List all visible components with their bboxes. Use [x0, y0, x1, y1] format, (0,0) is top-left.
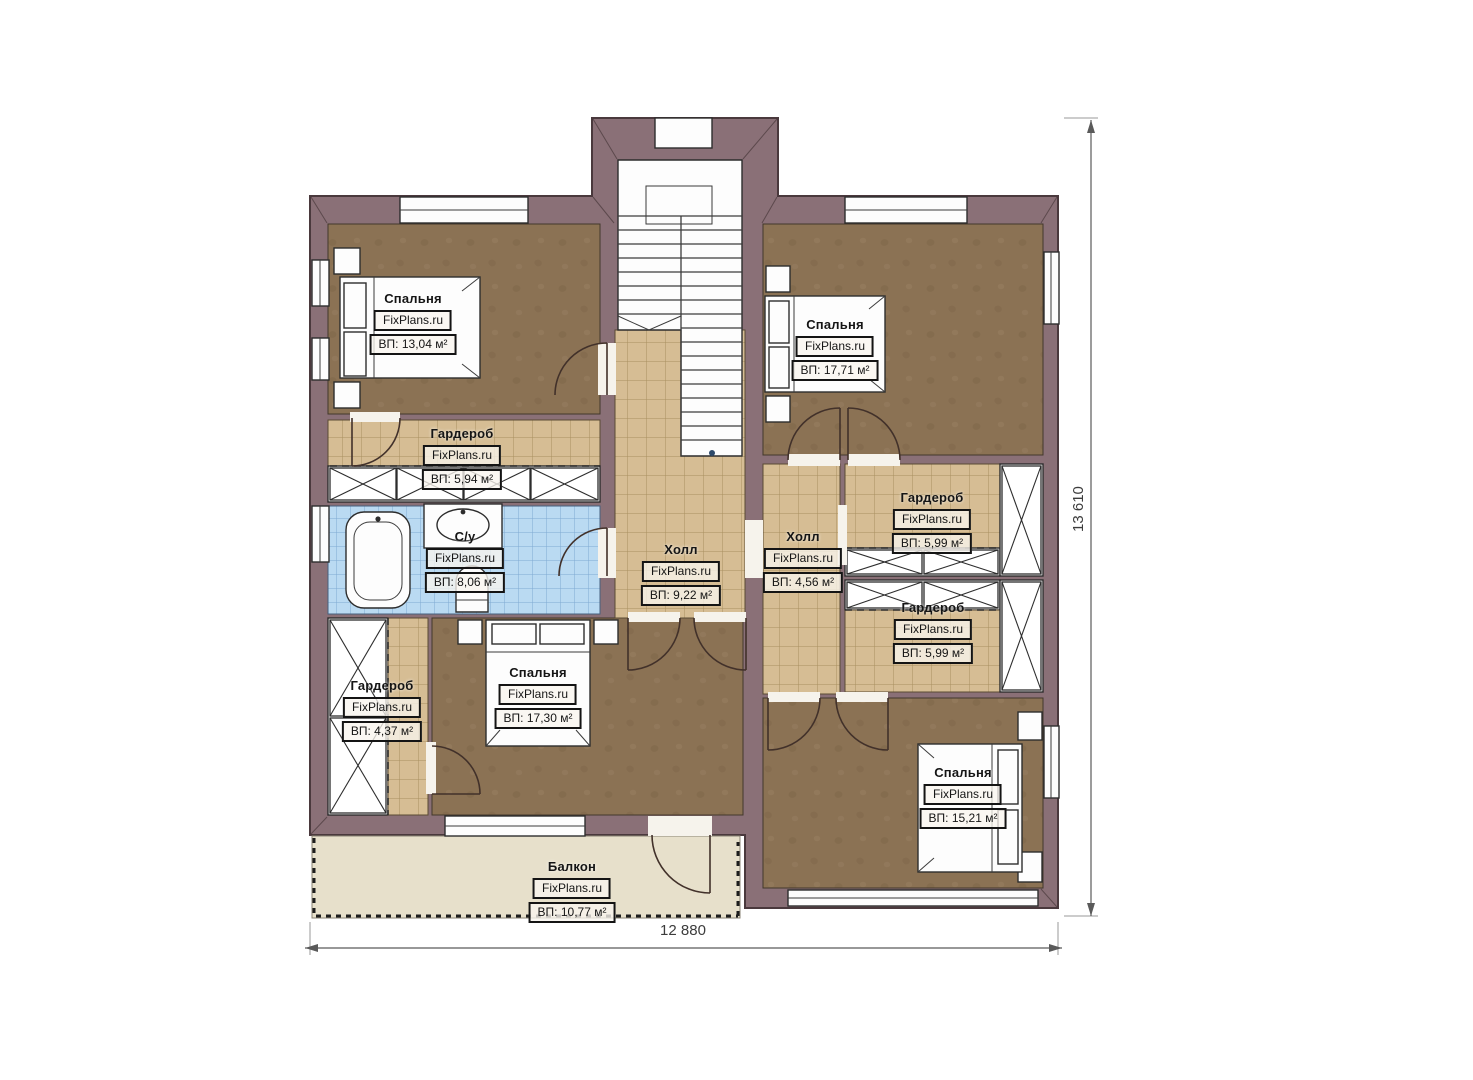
watermark: FixPlans.ru — [642, 561, 720, 582]
room-name: Балкон — [529, 860, 616, 875]
floor-plan-drawing — [0, 0, 1473, 1080]
room-name: Гардероб — [422, 427, 502, 442]
room-label-hall-center: Холл FixPlans.ru ВП: 9,22 м² — [641, 543, 721, 606]
watermark: FixPlans.ru — [894, 619, 972, 640]
room-area: ВП: 5,99 м² — [893, 643, 973, 664]
watermark: FixPlans.ru — [764, 548, 842, 569]
room-name: Спальня — [370, 292, 457, 307]
room-area: ВП: 8,06 м² — [425, 572, 505, 593]
room-label-wardrobe-right-bottom: Гардероб FixPlans.ru ВП: 5,99 м² — [893, 601, 973, 664]
room-label-bedroom-bottom-center: Спальня FixPlans.ru ВП: 17,30 м² — [495, 666, 582, 729]
watermark: FixPlans.ru — [924, 784, 1002, 805]
room-area: ВП: 5,99 м² — [892, 533, 972, 554]
room-area: ВП: 5,94 м² — [422, 469, 502, 490]
room-area: ВП: 9,22 м² — [641, 585, 721, 606]
watermark: FixPlans.ru — [343, 697, 421, 718]
balcony-deck — [312, 836, 740, 918]
room-label-bedroom-top-right: Спальня FixPlans.ru ВП: 17,71 м² — [792, 318, 879, 381]
room-label-hall-right: Холл FixPlans.ru ВП: 4,56 м² — [763, 530, 843, 593]
room-name: С/у — [425, 530, 505, 545]
room-area: ВП: 17,71 м² — [792, 360, 879, 381]
room-area: ВП: 4,56 м² — [763, 572, 843, 593]
watermark: FixPlans.ru — [796, 336, 874, 357]
bathtub-symbol — [346, 512, 410, 608]
watermark: FixPlans.ru — [893, 509, 971, 530]
room-area: ВП: 10,77 м² — [529, 902, 616, 923]
room-label-wardrobe-left-bottom: Гардероб FixPlans.ru ВП: 4,37 м² — [342, 679, 422, 742]
room-name: Гардероб — [892, 491, 972, 506]
room-area: ВП: 17,30 м² — [495, 708, 582, 729]
room-label-balcony: Балкон FixPlans.ru ВП: 10,77 м² — [529, 860, 616, 923]
room-name: Холл — [641, 543, 721, 558]
watermark: FixPlans.ru — [533, 878, 611, 899]
room-label-bedroom-top-left: Спальня FixPlans.ru ВП: 13,04 м² — [370, 292, 457, 355]
dimension-width-label: 12 880 — [660, 922, 706, 939]
watermark: FixPlans.ru — [426, 548, 504, 569]
room-area: ВП: 4,37 м² — [342, 721, 422, 742]
room-label-wardrobe-right-top: Гардероб FixPlans.ru ВП: 5,99 м² — [892, 491, 972, 554]
watermark: FixPlans.ru — [423, 445, 501, 466]
dimension-height-label: 13 610 — [1070, 486, 1087, 532]
room-label-bedroom-bottom-right: Спальня FixPlans.ru ВП: 15,21 м² — [920, 766, 1007, 829]
floor-plan-page: Спальня FixPlans.ru ВП: 13,04 м² Гардеро… — [0, 0, 1473, 1080]
room-label-wardrobe-left: Гардероб FixPlans.ru ВП: 5,94 м² — [422, 427, 502, 490]
room-area: ВП: 15,21 м² — [920, 808, 1007, 829]
room-label-bathroom: С/у FixPlans.ru ВП: 8,06 м² — [425, 530, 505, 593]
watermark: FixPlans.ru — [499, 684, 577, 705]
room-name: Холл — [763, 530, 843, 545]
room-name: Спальня — [920, 766, 1007, 781]
room-name: Гардероб — [893, 601, 973, 616]
watermark: FixPlans.ru — [374, 310, 452, 331]
room-name: Гардероб — [342, 679, 422, 694]
room-name: Спальня — [792, 318, 879, 333]
room-area: ВП: 13,04 м² — [370, 334, 457, 355]
room-name: Спальня — [495, 666, 582, 681]
